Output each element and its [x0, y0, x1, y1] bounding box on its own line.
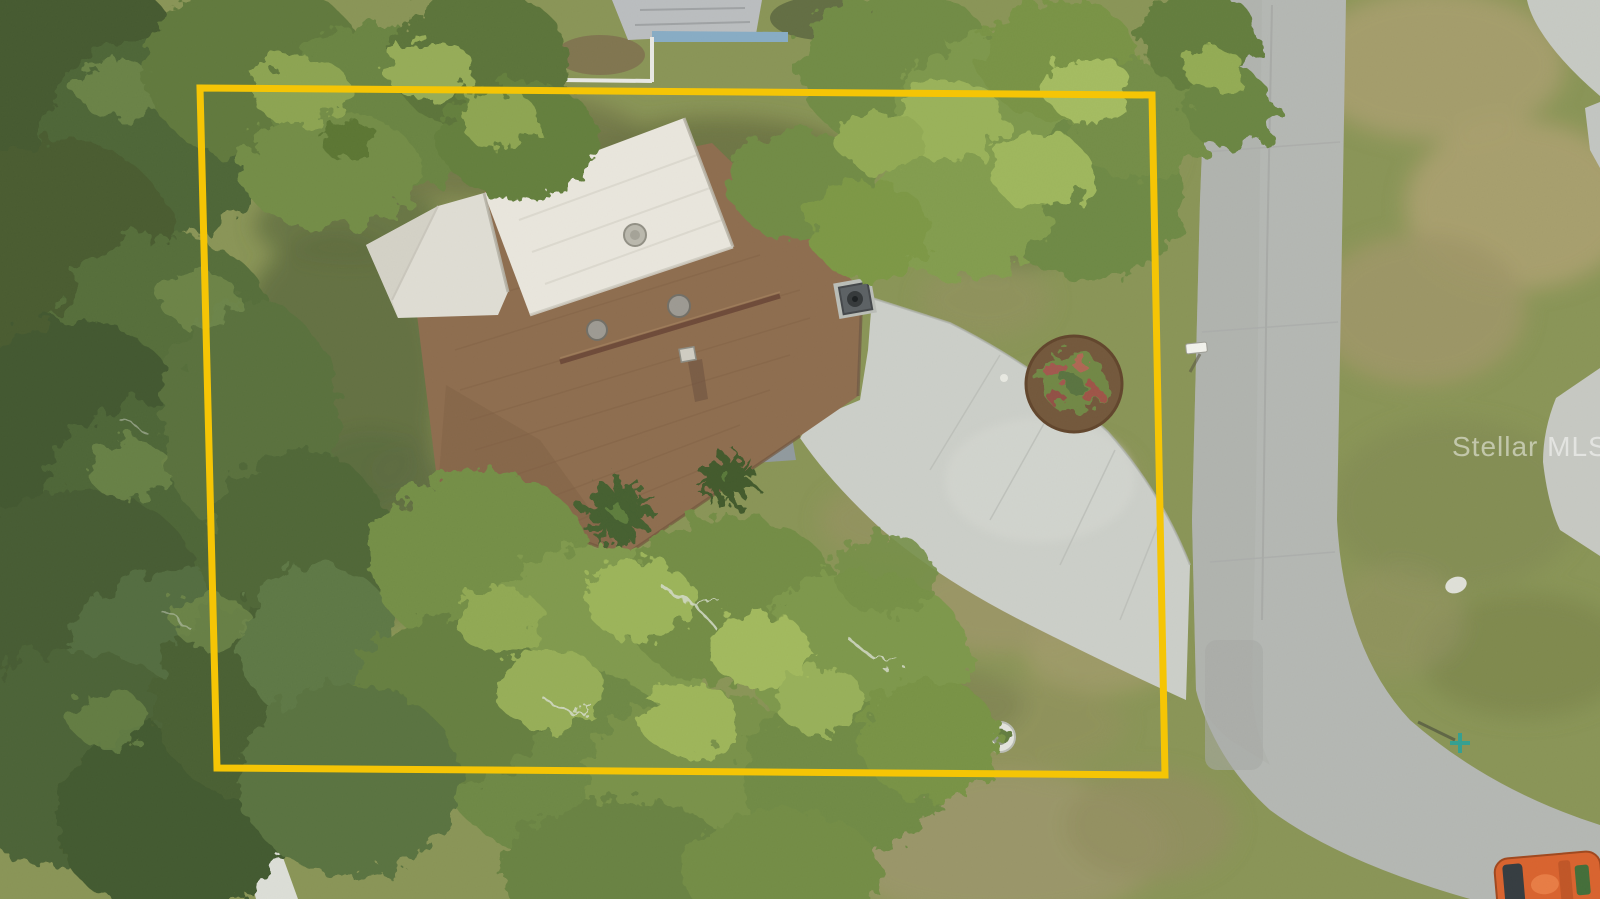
aerial-photo: Stellar MLS: [0, 0, 1600, 899]
photo-grain: [0, 0, 1600, 899]
watermark: Stellar MLS: [1452, 431, 1600, 462]
